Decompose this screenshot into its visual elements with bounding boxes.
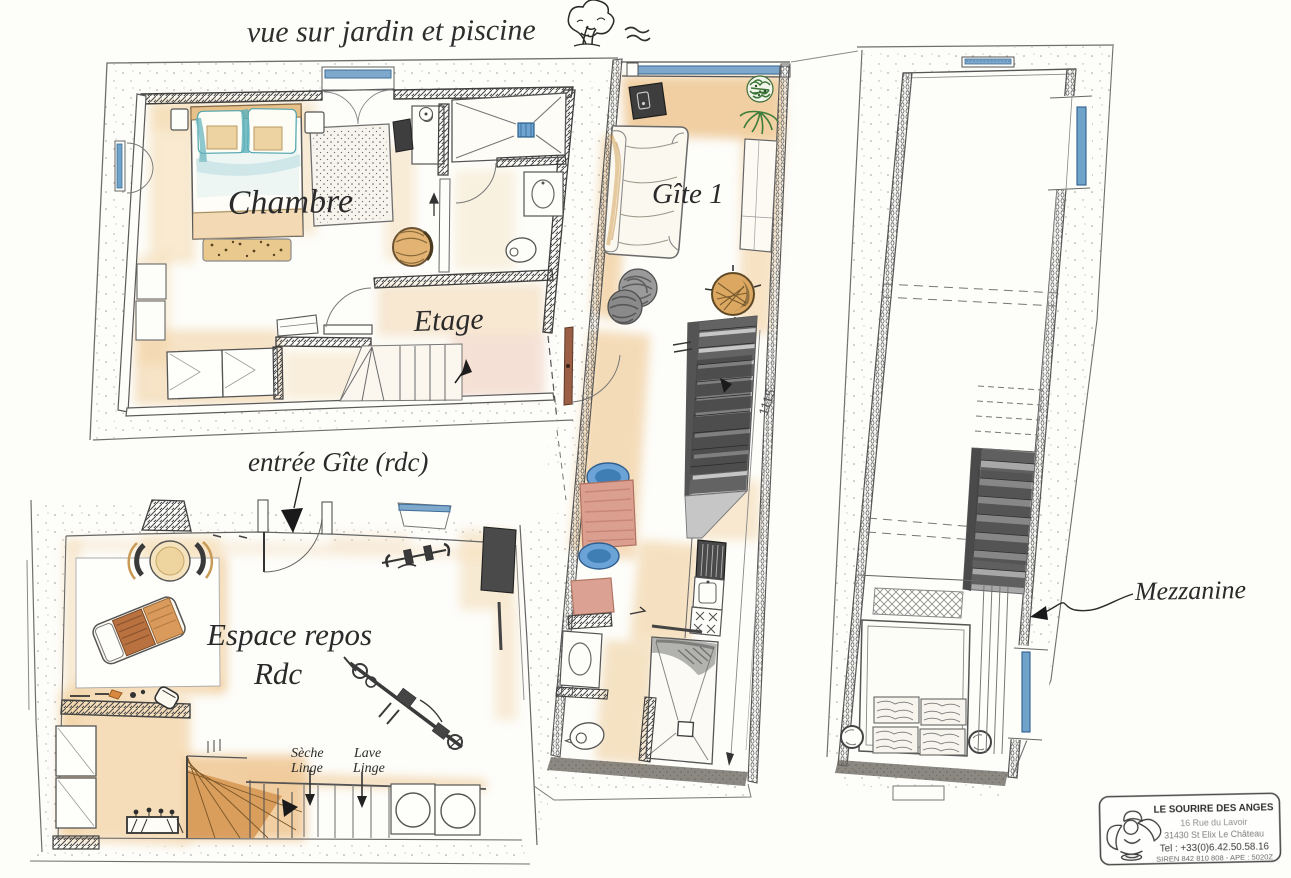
svg-text:Lave: Lave (353, 746, 381, 761)
svg-text:Espace repos: Espace repos (206, 617, 372, 652)
svg-text:Linge: Linge (290, 761, 323, 776)
svg-text:Sèche: Sèche (291, 746, 324, 761)
svg-text:Chambre: Chambre (227, 183, 353, 222)
svg-text:Linge: Linge (352, 761, 385, 776)
svg-text:Rdc: Rdc (253, 656, 302, 691)
svg-text:Etage: Etage (412, 303, 484, 338)
svg-text:31430 St Elix Le Château: 31430 St Elix Le Château (1164, 828, 1264, 840)
svg-text:vue sur jardin et piscine: vue sur jardin et piscine (247, 13, 536, 49)
svg-text:Mezzanine: Mezzanine (1134, 575, 1247, 606)
svg-text:Gîte 1: Gîte 1 (652, 178, 724, 210)
svg-text:16 Rue du Lavoir: 16 Rue du Lavoir (1180, 817, 1247, 828)
svg-text:entrée Gîte (rdc): entrée Gîte (rdc) (248, 447, 428, 477)
